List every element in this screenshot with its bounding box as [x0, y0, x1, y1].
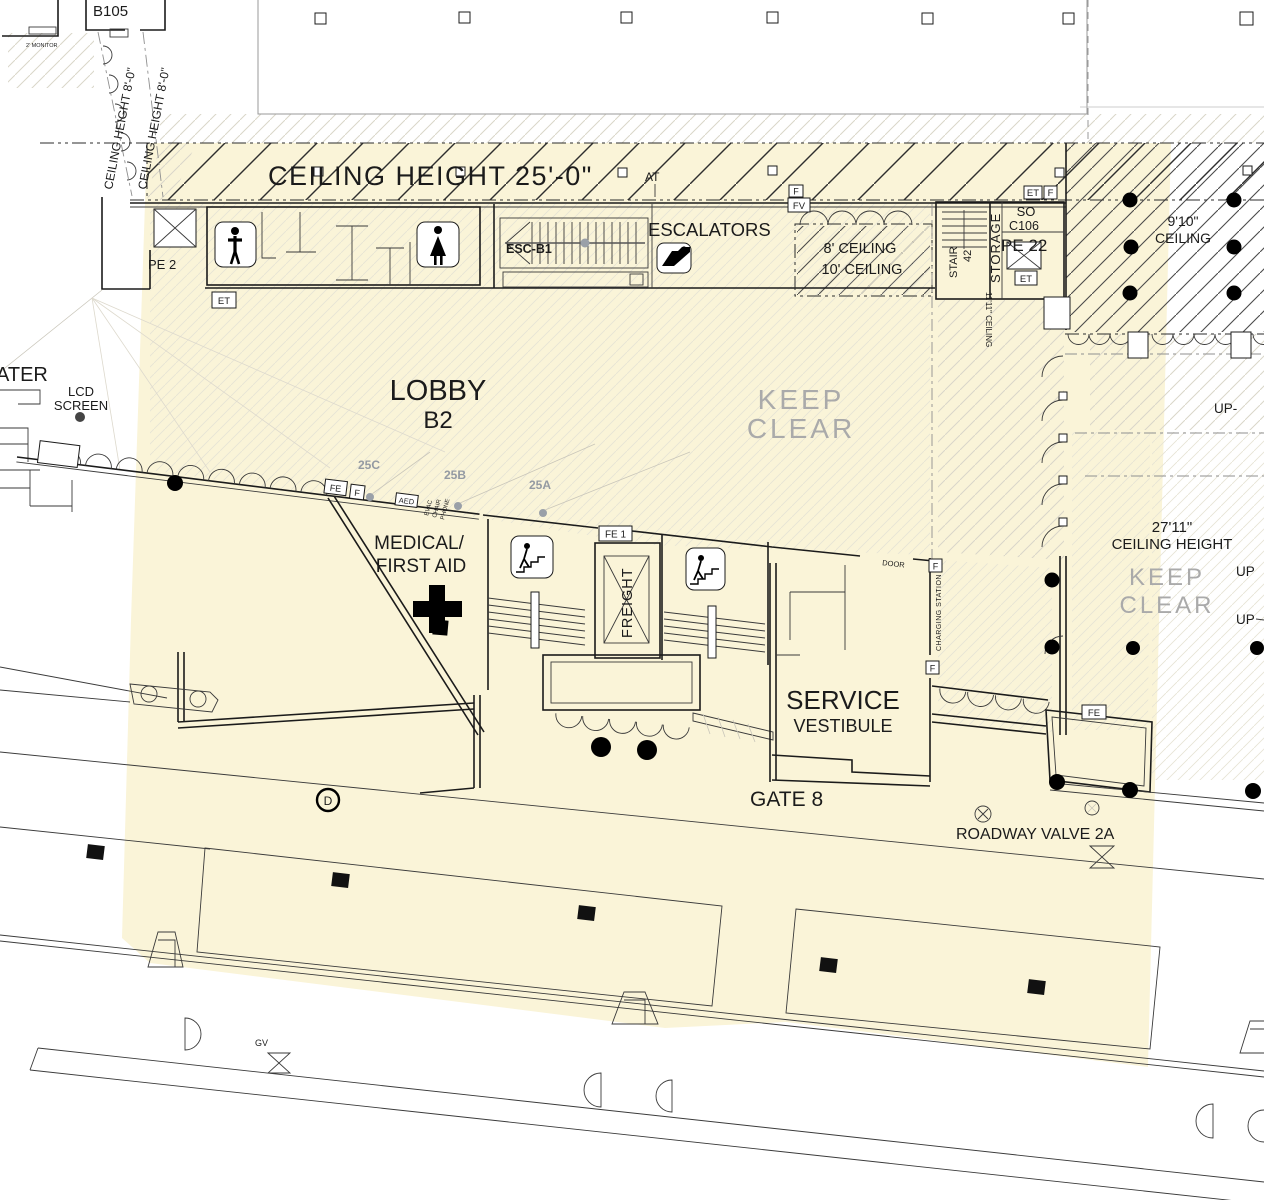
hatch-ceiling910-top	[1066, 143, 1264, 200]
lcd-screen-line1: LCD	[68, 384, 94, 399]
floor-plan-canvas: B105 2' MONITOR CEILING HEIGHT 8'-0" CEI…	[0, 0, 1264, 1200]
service-label-line1: SERVICE	[786, 685, 900, 715]
escalators-label: ESCALATORS	[648, 219, 771, 240]
ceiling-2711-line2: CEILING HEIGHT	[1112, 536, 1233, 553]
medical-label-line1: MEDICAL/	[374, 533, 464, 554]
room-so-label: SO	[1017, 204, 1036, 219]
tag-at: AT	[645, 170, 660, 184]
ceiling-10-label: 10' CEILING	[822, 262, 903, 278]
up-label-2: UP	[1236, 564, 1255, 579]
gv-valve: GV	[255, 1038, 290, 1073]
up-label-3: UP	[1236, 612, 1255, 627]
service-label-line2: VESTIBULE	[793, 716, 892, 736]
gv-bowtie-icon	[268, 1053, 290, 1073]
roadway-valve-label: ROADWAY VALVE 2A	[956, 826, 1115, 843]
up-label-1: UP-	[1214, 401, 1237, 416]
ceiling-8-label: 8' CEILING	[824, 241, 897, 257]
escalator-icon	[657, 243, 691, 273]
keep-clear-lobby-line2: CLEAR	[747, 413, 855, 444]
keep-clear-lobby-line1: KEEP	[758, 384, 845, 415]
lcd-screen-line2: SCREEN	[54, 398, 108, 413]
grid-d-label: D	[324, 794, 333, 808]
column-square	[432, 619, 448, 635]
ceiling-8ft-label-left: CEILING HEIGHT 8'-0"	[101, 66, 138, 190]
stair-42-number: 42	[962, 250, 974, 262]
drain-grate	[1027, 979, 1046, 995]
hatch-topleft	[8, 33, 94, 88]
gate8-label: GATE 8	[750, 788, 823, 811]
tag-f-top: F	[1048, 188, 1054, 199]
ceiling-910-line1: 9'10"	[1167, 213, 1198, 229]
floor-plan-svg: B105 2' MONITOR CEILING HEIGHT 8'-0" CEI…	[0, 0, 1264, 1200]
room-so-number: C106	[1009, 219, 1039, 233]
freight-elevator-label: FREIGHT	[620, 567, 636, 638]
drain-grate	[819, 957, 838, 973]
tag-fe-wall: FE	[329, 483, 342, 494]
tag-fv: FV	[793, 201, 806, 212]
elevator-pe22-label: PE 22	[1001, 236, 1047, 255]
charging-station-label: CHARGING STATION	[936, 574, 943, 651]
hatch-keepclear-mid	[938, 300, 1064, 560]
gv-label: GV	[255, 1038, 268, 1048]
drain-grate	[577, 905, 596, 921]
room-b105-label: B105	[93, 3, 128, 20]
rooms-top-left: B105 2' MONITOR CEILING HEIGHT 8'-0" CEI…	[2, 0, 173, 197]
keep-clear-east-line2: CLEAR	[1119, 592, 1214, 619]
grid-25c: 25C	[358, 458, 380, 472]
tag-et-top: ET	[1027, 188, 1039, 199]
grid-25a: 25A	[529, 478, 551, 492]
hatch-band-above-banner	[160, 114, 1264, 143]
tag-fe-east: FE	[1088, 708, 1100, 719]
tag-f-banner: F	[793, 187, 799, 197]
escalator-id-label: ESC-B1	[506, 242, 552, 256]
ater-label: ATER	[0, 364, 48, 386]
elevator-pe2-label: PE 2	[148, 257, 176, 272]
lobby-number: B2	[423, 407, 452, 434]
tag-et-pe22: ET	[1020, 274, 1032, 285]
tag-f-service-top: F	[933, 562, 939, 572]
tag-et-restroom: ET	[218, 296, 230, 307]
stair-42-label: STAIR	[948, 246, 960, 278]
monitor-label: 2' MONITOR	[26, 43, 58, 49]
ceiling-banner-label: CEILING HEIGHT 25'-0"	[268, 161, 593, 191]
ceiling-2711-line1: 27'11"	[1152, 519, 1192, 536]
drain-grate	[86, 844, 105, 860]
tag-fe1: FE 1	[605, 530, 627, 541]
hatch-ceiling910	[1066, 200, 1264, 332]
ceiling-1111-label: 11'11" CEILING	[984, 292, 993, 347]
grid-25b: 25B	[444, 468, 466, 482]
drain-grate	[331, 872, 350, 888]
medical-label-line2: FIRST AID	[376, 556, 466, 577]
ceiling-910-line2: CEILING	[1155, 230, 1211, 246]
keep-clear-east-line1: KEEP	[1129, 564, 1205, 591]
lcd-screen-dot	[75, 412, 85, 422]
tag-f-service-mid: F	[930, 664, 936, 674]
lobby-label: LOBBY	[390, 375, 487, 407]
hatch-service-east	[938, 560, 1052, 732]
elevator-pe22: PE 22	[1001, 236, 1047, 269]
